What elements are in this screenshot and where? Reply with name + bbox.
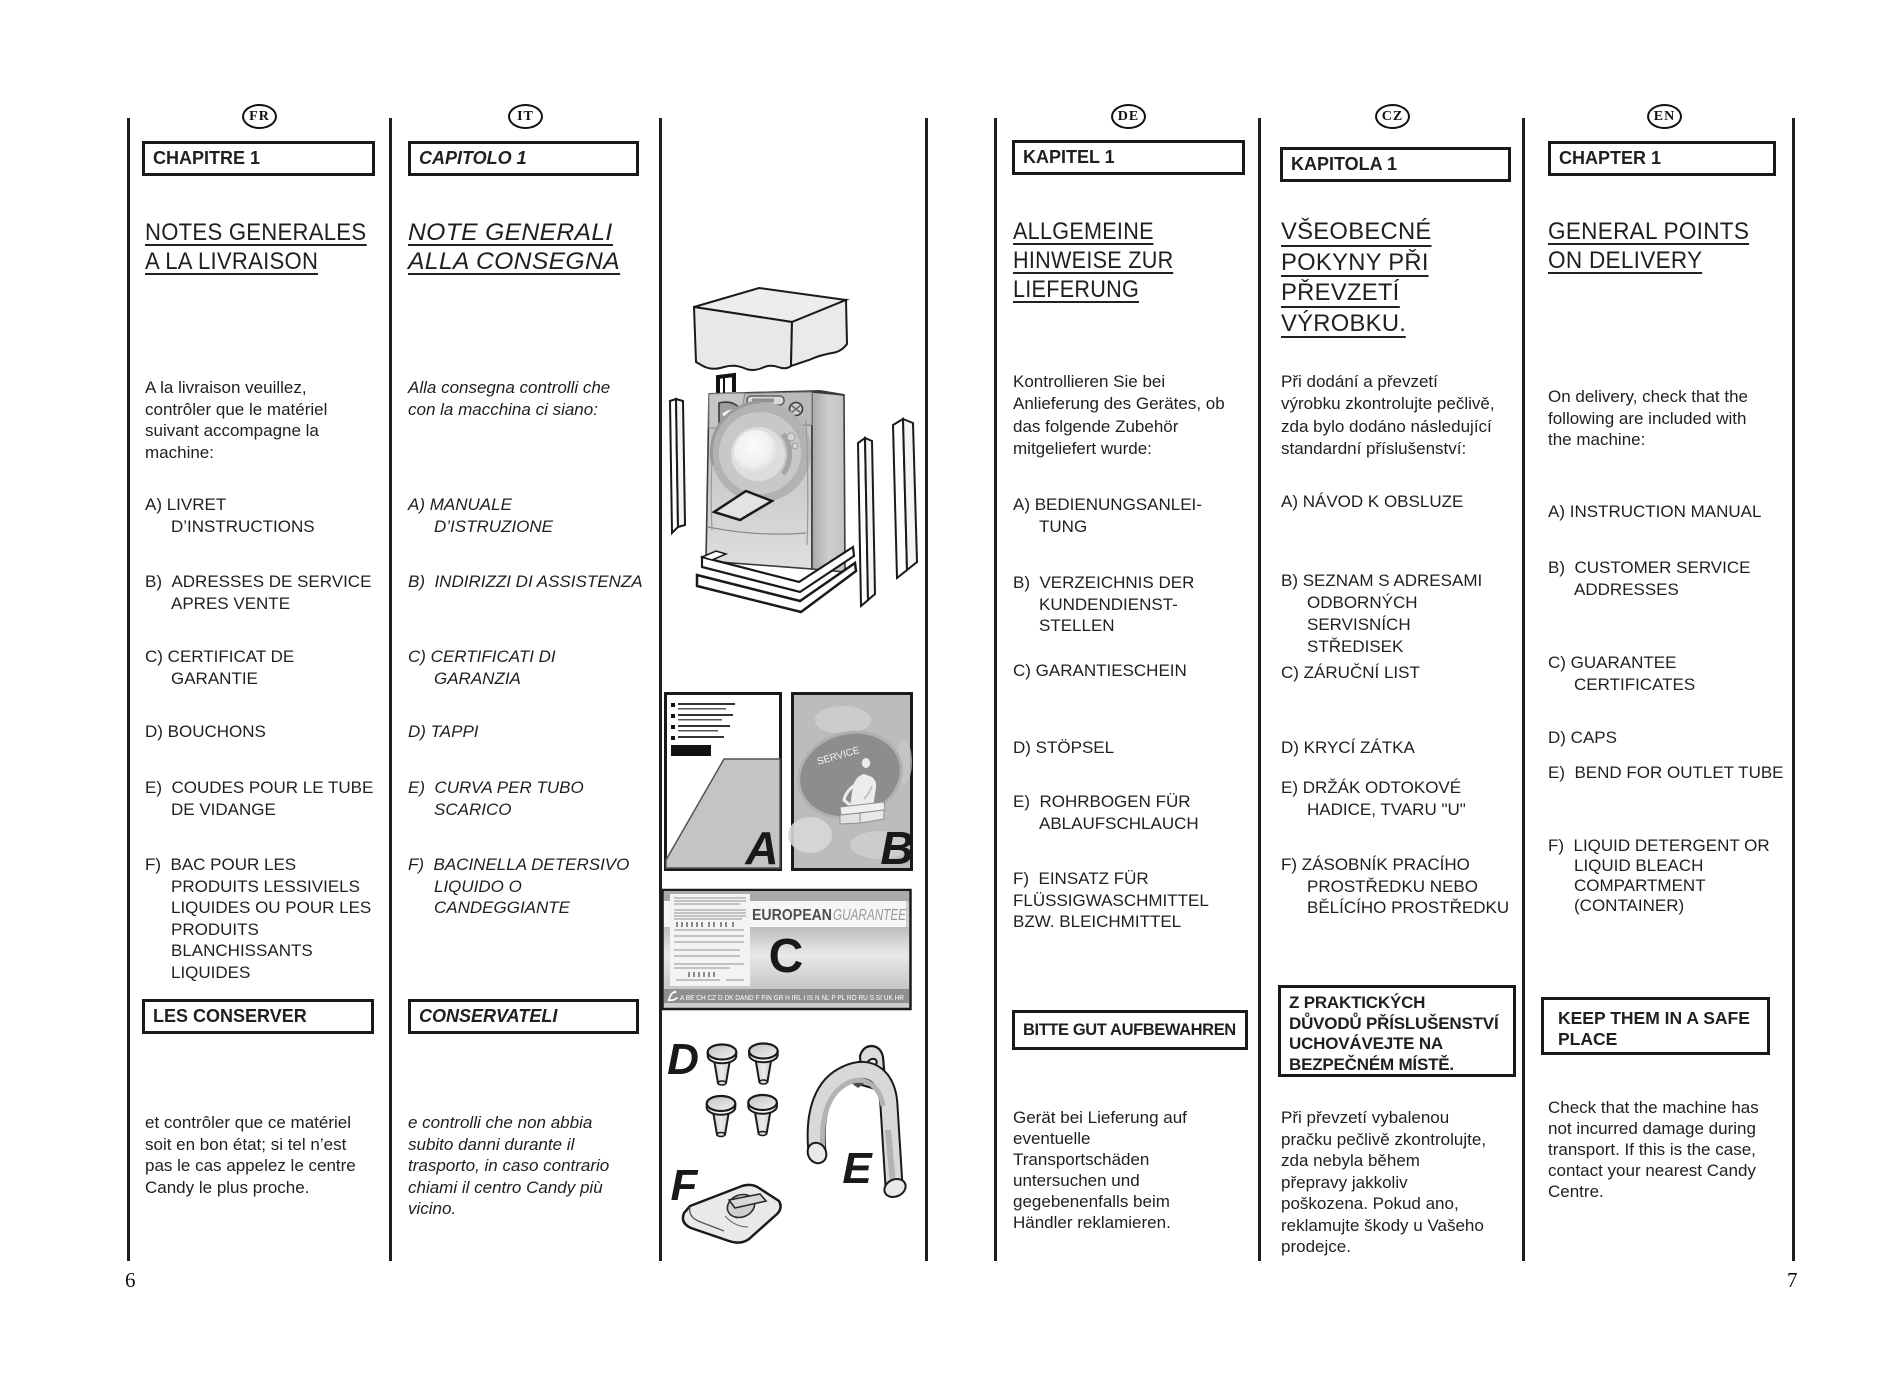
svg-text:A BE CH CZ D DK DAND F FI: A BE CH CZ D DK DAND F FIN GR H IRL I IS… <box>680 995 904 1002</box>
svg-text:A: A <box>744 822 778 874</box>
svg-text:B: B <box>880 822 913 874</box>
svg-text:D: D <box>667 1035 699 1084</box>
svg-text:F: F <box>671 1161 699 1210</box>
svg-text:E: E <box>842 1144 873 1193</box>
svg-text:C: C <box>769 930 804 983</box>
svg-text:EUROPEAN: EUROPEAN <box>752 907 832 924</box>
svg-text:GUARANTEE: GUARANTEE <box>833 907 906 924</box>
